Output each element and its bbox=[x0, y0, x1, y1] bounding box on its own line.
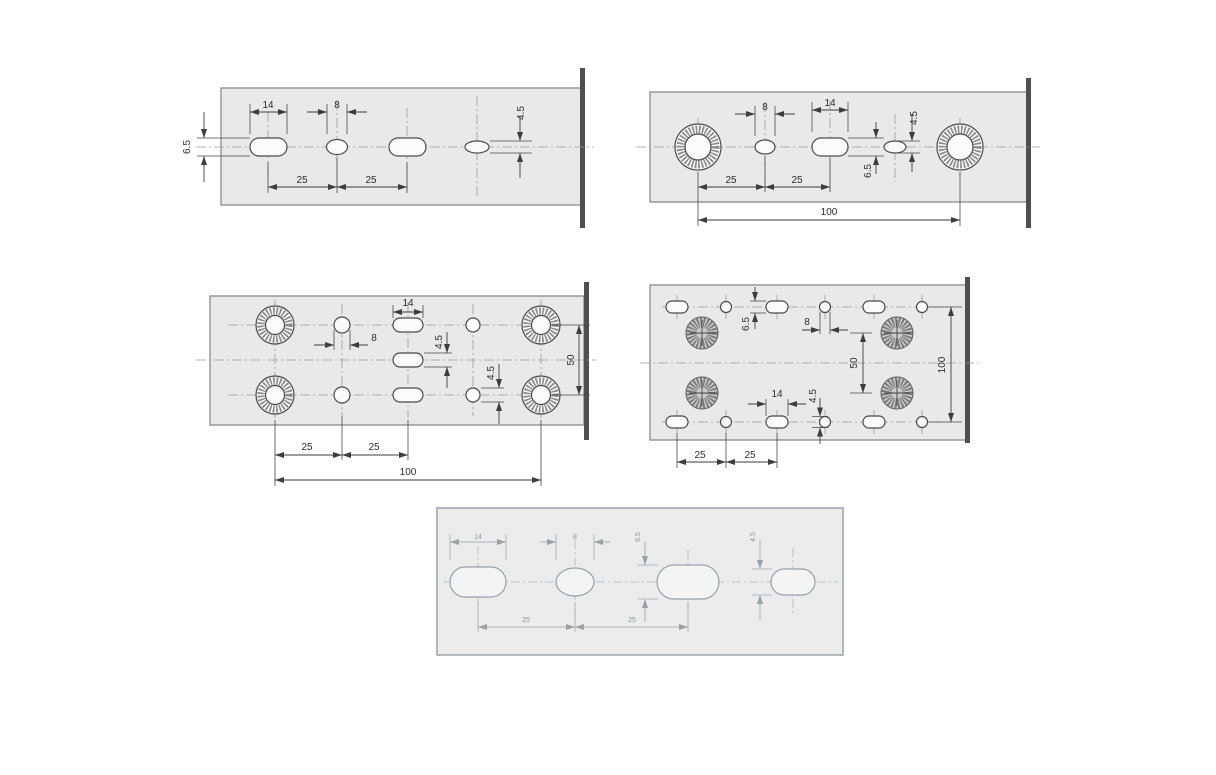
knurled-insert-hole bbox=[256, 376, 294, 414]
round-hole bbox=[334, 387, 350, 403]
dim-label-pitch-b: 25 bbox=[791, 175, 803, 186]
dim-label-slot-width: 14 bbox=[824, 98, 836, 109]
slot-hole bbox=[766, 301, 788, 313]
dim-label-pitch-a: 25 bbox=[296, 175, 308, 186]
dim-label-hole-height: 4.5 bbox=[750, 532, 757, 542]
panel-bottom-strip: 14 8 6.5 4.5 25 25 bbox=[437, 508, 843, 655]
dim-label-slot-width: 14 bbox=[474, 534, 482, 541]
dim-label-pitch-a: 25 bbox=[301, 442, 313, 453]
dim-label-pitch-b: 25 bbox=[628, 617, 636, 624]
slot-hole bbox=[657, 565, 719, 599]
dim-label-slot-height: 6.5 bbox=[741, 317, 752, 331]
round-hole bbox=[917, 417, 928, 428]
oval-hole bbox=[327, 140, 348, 155]
knurled-grommet-hole bbox=[937, 124, 983, 170]
dim-label-pitch-b: 25 bbox=[368, 442, 380, 453]
drawing-svg: 14 8 4.5 6.5 25 25 bbox=[0, 0, 1216, 775]
slot-hole bbox=[766, 416, 788, 428]
round-hole bbox=[466, 318, 480, 332]
dim-label-hole-width: 8 bbox=[573, 534, 577, 541]
technical-drawing-canvas: 14 8 4.5 6.5 25 25 bbox=[0, 0, 1216, 775]
dim-label-pitch-b: 25 bbox=[744, 450, 756, 461]
dim-label-hole-height: 4.5 bbox=[516, 106, 527, 120]
slot-hole bbox=[393, 353, 423, 367]
panel-top-left-strip: 14 8 4.5 6.5 25 25 bbox=[182, 68, 594, 228]
dim-label-hole-width: 8 bbox=[334, 100, 340, 111]
slot-hole bbox=[393, 388, 423, 402]
dim-label-slot-width: 14 bbox=[262, 100, 274, 111]
dim-label-slot-height: 6.5 bbox=[863, 164, 874, 178]
cut-line bbox=[584, 282, 589, 440]
dark-knurled-insert bbox=[686, 377, 718, 409]
round-hole bbox=[721, 417, 732, 428]
dim-label-slot-width: 14 bbox=[402, 298, 414, 309]
dim-label-hole-height: 4.5 bbox=[909, 111, 920, 125]
slot-hole bbox=[812, 138, 848, 156]
slot-hole bbox=[393, 318, 423, 332]
dim-label-hole-width: 8 bbox=[371, 333, 377, 344]
dim-label-pitch-a: 25 bbox=[522, 617, 530, 624]
slot-hole bbox=[666, 301, 688, 313]
dim-label-row-spacing: 50 bbox=[566, 354, 577, 366]
dim-label-pitch-b: 25 bbox=[365, 175, 377, 186]
panel-middle-left-plate: 14 8 4.5 4.5 50 25 25 100 bbox=[196, 282, 596, 486]
dim-label-overall-length: 100 bbox=[821, 207, 838, 218]
oval-hole bbox=[755, 140, 775, 154]
round-hole bbox=[820, 302, 831, 313]
dim-label-slot-width: 14 bbox=[771, 389, 783, 400]
round-hole bbox=[466, 388, 480, 402]
dim-label-slot-height: 6.5 bbox=[182, 140, 193, 154]
dim-label-hole-width: 8 bbox=[804, 317, 810, 328]
dim-label-hole-width: 8 bbox=[762, 102, 768, 113]
slot-hole bbox=[771, 569, 815, 595]
slot-hole bbox=[863, 416, 885, 428]
cut-line bbox=[965, 277, 970, 443]
knurled-grommet-hole bbox=[675, 124, 721, 170]
dark-knurled-insert bbox=[686, 317, 718, 349]
dark-knurled-insert bbox=[881, 317, 913, 349]
round-hole bbox=[721, 302, 732, 313]
dim-label-hole-height: 4.5 bbox=[486, 366, 497, 380]
dim-label-slot-height: 4.5 bbox=[434, 335, 445, 349]
dim-label-pitch-a: 25 bbox=[725, 175, 737, 186]
panel-middle-right-plate: 6.5 8 50 100 14 4.5 25 25 bbox=[640, 277, 978, 468]
round-hole bbox=[917, 302, 928, 313]
dark-knurled-insert bbox=[881, 377, 913, 409]
knurled-insert-hole bbox=[256, 306, 294, 344]
dim-label-hole-height: 4.5 bbox=[808, 389, 819, 403]
oval-hole bbox=[884, 141, 906, 153]
oval-hole bbox=[465, 141, 489, 153]
cut-line bbox=[1026, 78, 1031, 228]
oval-hole bbox=[556, 568, 594, 596]
cut-line bbox=[580, 68, 585, 228]
slot-hole bbox=[666, 416, 688, 428]
slot-hole bbox=[450, 567, 506, 597]
slot-hole bbox=[863, 301, 885, 313]
panel-top-right-strip: 8 14 4.5 6.5 25 25 100 bbox=[636, 78, 1040, 228]
dim-label-row-spacing: 50 bbox=[849, 357, 860, 369]
dim-label-overall-length: 100 bbox=[400, 467, 417, 478]
dim-label-pitch-a: 25 bbox=[694, 450, 706, 461]
round-hole bbox=[334, 317, 350, 333]
slot-hole bbox=[389, 138, 426, 156]
round-hole bbox=[820, 417, 831, 428]
slot-hole bbox=[250, 138, 287, 156]
dim-label-overall-height: 100 bbox=[937, 356, 948, 373]
dim-label-slot-height: 6.5 bbox=[635, 532, 642, 542]
